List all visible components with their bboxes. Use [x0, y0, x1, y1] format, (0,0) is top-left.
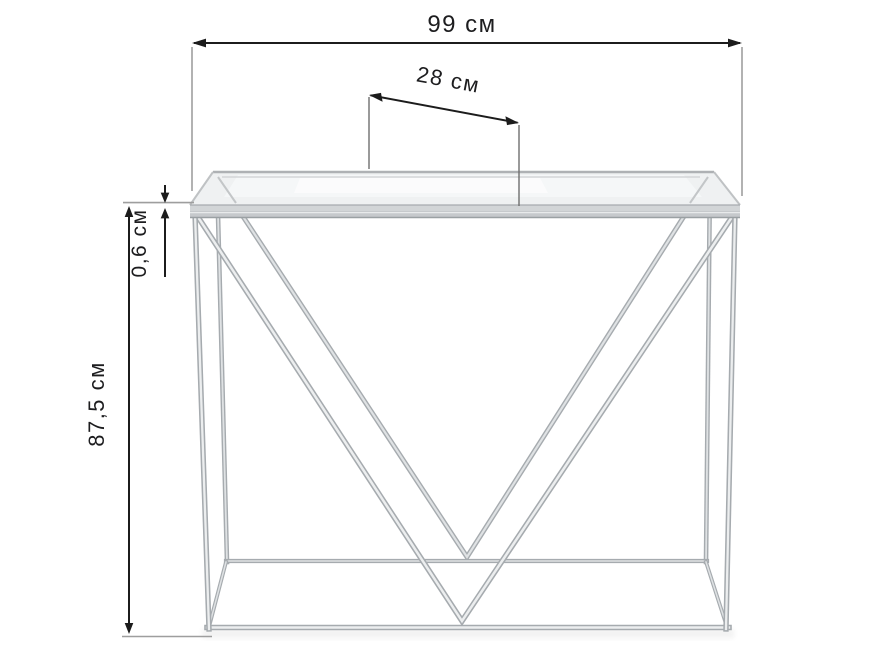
glass-front-edge [190, 205, 740, 211]
floor-shadow [202, 629, 734, 638]
arrowhead-left-icon [192, 39, 206, 48]
arrowhead-down-icon [125, 623, 134, 634]
dimension-diagram: 99 см 28 см 0,6 см 87,5 см [0, 0, 879, 660]
dimension-depth-label: 28 см [415, 61, 483, 97]
front-left-leg [195, 214, 209, 629]
dimension-width: 99 см [192, 11, 742, 196]
back-left-leg [217, 176, 227, 562]
glass-top [190, 172, 740, 205]
dimension-glass-thickness-label: 0,6 см [128, 209, 151, 278]
arrowhead-down-icon [161, 193, 170, 203]
arrowhead-right-icon [505, 116, 519, 125]
dimension-height-label: 87,5 см [84, 361, 109, 447]
top-frame [190, 205, 740, 218]
front-right-leg [726, 214, 735, 629]
arrowhead-left-icon [369, 93, 383, 102]
back-right-leg [706, 176, 710, 562]
console-table [190, 172, 740, 638]
dimension-line [371, 95, 518, 122]
frame-front-face [190, 211, 740, 218]
dimension-width-label: 99 см [427, 11, 496, 38]
base-frame [207, 561, 729, 628]
back-v-support [217, 177, 709, 557]
dimension-glass-thickness: 0,6 см [123, 185, 194, 277]
arrowhead-right-icon [728, 39, 742, 48]
diagram-svg: 99 см 28 см 0,6 см 87,5 см [0, 0, 879, 660]
